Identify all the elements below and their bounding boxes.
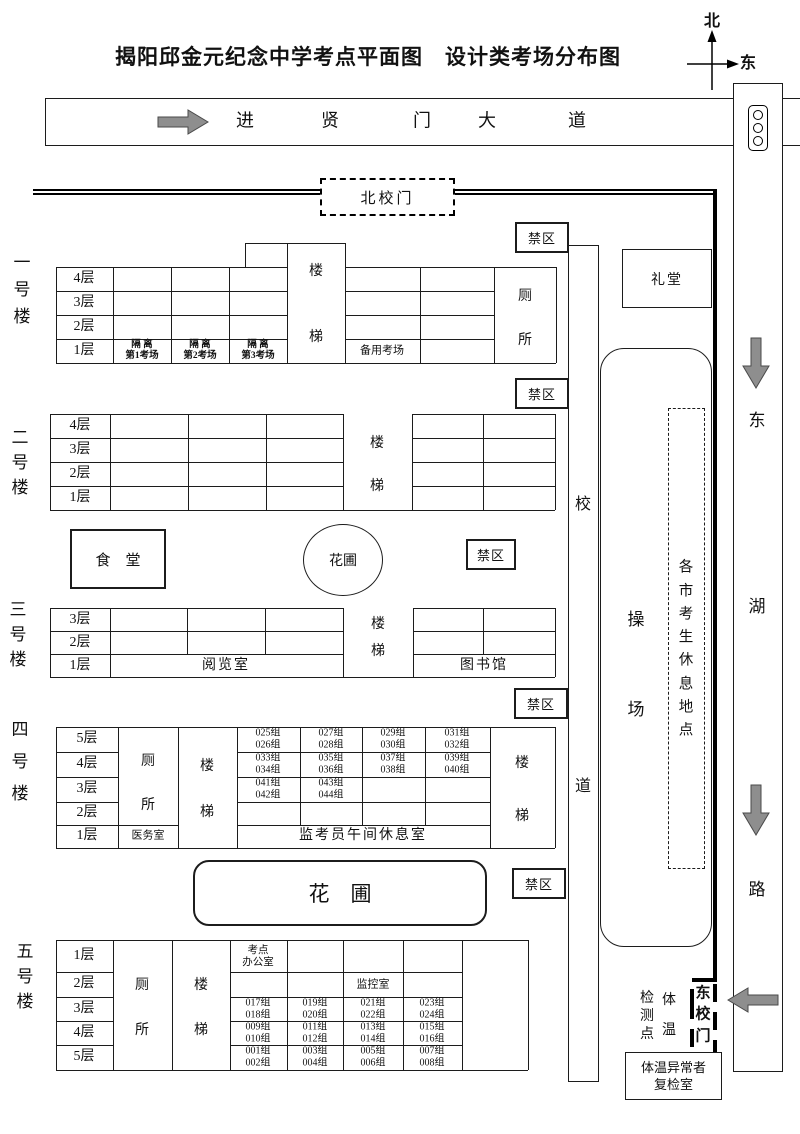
floor-label: 1层 <box>74 948 95 964</box>
forbidden-zone-label: 禁区 <box>525 874 553 893</box>
floor-label: 1层 <box>70 490 91 506</box>
floor-label: 2层 <box>74 319 95 335</box>
floor-label: 3层 <box>74 1001 95 1017</box>
grid-line <box>413 654 555 655</box>
north-gate: 北校门 <box>320 178 455 216</box>
garden-rect: 花 圃 <box>193 860 487 926</box>
grid-line <box>425 727 426 825</box>
east-wall <box>713 189 717 980</box>
top-road-char: 贤 <box>321 111 339 132</box>
grid-line <box>266 414 267 510</box>
traffic-light-dot <box>753 123 763 133</box>
auditorium: 礼堂 <box>622 249 712 308</box>
toilet-char: 所 <box>518 333 532 349</box>
east-gate-char: 门 <box>695 1028 710 1045</box>
grid-line <box>50 608 51 677</box>
grid-line <box>56 752 118 753</box>
building5-label-char: 号 <box>17 967 34 987</box>
floor-label: 5层 <box>74 1049 95 1065</box>
grid-line <box>50 486 343 487</box>
rest-area-char: 考 <box>679 607 694 624</box>
monitor-room-label: 监控室 <box>357 979 390 992</box>
building4-label-char: 四 <box>12 720 29 740</box>
rest-area-char: 休 <box>679 653 694 670</box>
east-gate-char: 东 <box>695 985 710 1002</box>
garden-circle-label: 花圃 <box>329 550 357 570</box>
isolation-room-1: 隔 离 第1考场 <box>125 340 158 362</box>
top-road-upper-line <box>45 98 800 99</box>
building2-label-char: 号 <box>12 453 29 473</box>
grid-line <box>56 1021 113 1022</box>
exam-group-cell: 011组 012组 <box>303 1022 328 1045</box>
garden-circle: 花圃 <box>303 524 383 596</box>
grid-line <box>343 940 344 1070</box>
building2-label-char: 二 <box>12 428 29 448</box>
campus-road-char: 校 <box>575 496 591 514</box>
exam-group-cell: 001组 002组 <box>246 1046 271 1069</box>
east-road-char: 东 <box>749 411 766 431</box>
isolation-room-2: 隔 离 第2考场 <box>183 340 216 362</box>
grid-line <box>56 1070 528 1071</box>
exam-group-cell: 029组 030组 <box>381 728 406 751</box>
north-gate-label: 北校门 <box>360 187 414 208</box>
grid-line <box>413 608 555 609</box>
auditorium-label: 礼堂 <box>651 269 683 289</box>
building5-label-char: 楼 <box>17 992 34 1012</box>
grid-line <box>237 825 490 826</box>
grid-line <box>555 608 556 677</box>
traffic-light-icon <box>748 105 768 151</box>
building1-label-char: 号 <box>14 280 31 300</box>
building1-label-char: 楼 <box>14 307 31 327</box>
north-wall <box>455 189 716 195</box>
grid-line <box>494 267 495 363</box>
grid-line <box>110 608 111 677</box>
east-gate-post <box>690 989 694 1019</box>
canteen-label: 食 堂 <box>95 549 140 570</box>
building1-label-char: 一 <box>14 253 31 273</box>
top-road-char: 门 <box>413 111 431 132</box>
top-road-char: 进 <box>236 111 254 132</box>
forbidden-zone-label: 禁区 <box>528 384 556 403</box>
grid-line <box>287 243 288 363</box>
floor-label: 2层 <box>70 635 91 651</box>
exam-group-cell: 033组 034组 <box>256 753 281 776</box>
rest-area-char: 地 <box>679 700 694 717</box>
grid-line <box>413 631 555 632</box>
rest-area-char: 生 <box>679 630 694 647</box>
grid-line <box>56 267 57 363</box>
temp-check-char: 点 <box>640 1027 654 1043</box>
grid-line <box>343 414 344 510</box>
grid-line <box>412 414 413 510</box>
building2-label-char: 楼 <box>12 478 29 498</box>
playground-char: 操 <box>628 610 645 630</box>
floor-label: 4层 <box>77 756 98 772</box>
stairs-char: 梯 <box>194 1023 208 1039</box>
grid-line <box>113 267 114 363</box>
grid-line <box>230 940 231 1070</box>
grid-line <box>483 608 484 654</box>
exam-group-cell: 003组 004组 <box>303 1046 328 1069</box>
grid-line <box>229 267 230 363</box>
stairs-char: 梯 <box>515 809 529 825</box>
grid-line <box>50 677 555 678</box>
grid-line <box>245 243 246 267</box>
grid-line <box>50 414 343 415</box>
rest-area-char: 各 <box>679 560 694 577</box>
east-road <box>733 83 783 1072</box>
grid-line <box>56 997 113 998</box>
top-road-lower-line <box>45 145 800 146</box>
grid-line <box>118 727 119 848</box>
reading-room-label: 阅览室 <box>202 658 250 674</box>
forbidden-zone-badge: 禁区 <box>512 868 566 899</box>
grid-line <box>50 438 343 439</box>
forbidden-zone-label: 禁区 <box>528 228 556 247</box>
traffic-light-dot <box>753 136 763 146</box>
building5-label-char: 五 <box>17 942 34 962</box>
grid-line <box>188 414 189 510</box>
arrow-down-icon <box>743 338 769 390</box>
floor-label: 1层 <box>74 343 95 359</box>
exam-group-cell: 019组 020组 <box>303 998 328 1021</box>
grid-line <box>403 940 404 1070</box>
compass-north-label: 北 <box>704 13 720 31</box>
east-gate-notch <box>712 1002 719 1012</box>
exam-group-cell: 025组 026组 <box>256 728 281 751</box>
grid-line <box>56 363 556 364</box>
campus-road-char: 道 <box>575 778 591 796</box>
grid-line <box>265 608 266 654</box>
toilet-char: 厕 <box>135 978 149 994</box>
stairs-char: 梯 <box>200 805 214 821</box>
grid-line <box>462 940 463 1070</box>
garden-rect-label: 花 圃 <box>309 878 372 908</box>
arrow-right-icon <box>158 109 210 135</box>
building3-label-char: 号 <box>10 625 27 645</box>
temp-check-char: 体 <box>662 993 676 1009</box>
library-label: 图书馆 <box>460 658 508 674</box>
grid-line <box>287 940 288 1070</box>
stairs-char: 楼 <box>309 264 323 280</box>
grid-line <box>230 972 462 973</box>
temp-check-char: 检 <box>640 991 654 1007</box>
grid-line <box>171 267 172 363</box>
exam-group-cell: 007组 008组 <box>420 1046 445 1069</box>
grid-line <box>56 802 118 803</box>
grid-line <box>50 654 343 655</box>
floor-label: 3层 <box>74 295 95 311</box>
exam-group-cell: 027组 028组 <box>319 728 344 751</box>
grid-line <box>483 414 484 510</box>
floor-label: 2层 <box>74 976 95 992</box>
stairs-char: 楼 <box>371 617 385 633</box>
east-gate-notch <box>712 1030 719 1040</box>
east-gate-top-bar <box>692 978 717 982</box>
invigilator-rest-label: 监考员午间休息室 <box>299 828 427 844</box>
grid-line <box>555 414 556 510</box>
exam-group-cell: 031组 032组 <box>445 728 470 751</box>
site-office-label: 考点 办公室 <box>242 945 274 969</box>
grid-line <box>490 727 491 848</box>
grid-line <box>110 414 111 510</box>
exam-group-cell: 041组 042组 <box>256 778 281 801</box>
grid-line <box>300 727 301 825</box>
arrow-down-icon <box>743 785 769 837</box>
top-road-left-line <box>45 98 46 145</box>
exam-group-cell: 009组 010组 <box>246 1022 271 1045</box>
exam-group-cell: 021组 022组 <box>361 998 386 1021</box>
north-wall <box>33 189 320 195</box>
exam-site-floor-plan: 揭阳邱金元纪念中学考点平面图 设计类考场分布图 北 东 进 贤 门 大 道 北校… <box>0 0 800 1134</box>
floor-label: 2层 <box>70 466 91 482</box>
east-road-char: 路 <box>749 880 766 900</box>
isolation-room-3: 隔 离 第3考场 <box>241 340 274 362</box>
grid-line <box>56 727 555 728</box>
top-road-char: 道 <box>568 111 586 132</box>
floor-label: 2层 <box>77 805 98 821</box>
grid-line <box>56 825 178 826</box>
grid-line <box>50 510 555 511</box>
exam-group-cell: 023组 024组 <box>420 998 445 1021</box>
traffic-light-dot <box>753 110 763 120</box>
grid-line <box>50 462 343 463</box>
floor-label: 3层 <box>70 612 91 628</box>
exam-group-cell: 017组 018组 <box>246 998 271 1021</box>
grid-line <box>113 940 114 1070</box>
exam-group-cell: 039组 040组 <box>445 753 470 776</box>
rest-area-char: 点 <box>679 723 694 740</box>
grid-line <box>56 972 113 973</box>
grid-line <box>362 727 363 825</box>
forbidden-zone-label: 禁区 <box>477 545 505 564</box>
stairs-char: 楼 <box>370 436 384 452</box>
building3-label-char: 三 <box>10 600 27 620</box>
exam-group-cell: 015组 016组 <box>420 1022 445 1045</box>
grid-line <box>237 727 238 848</box>
grid-line <box>187 608 188 654</box>
forbidden-zone-badge: 禁区 <box>466 539 516 570</box>
building4-label-char: 号 <box>12 752 29 772</box>
compass-east-label: 东 <box>740 55 756 73</box>
toilet-char: 厕 <box>518 289 532 305</box>
temp-check-char: 温 <box>662 1023 676 1039</box>
rest-area-char: 息 <box>679 677 694 694</box>
stairs-char: 梯 <box>309 330 323 346</box>
recheck-room: 体温异常者 复检室 <box>625 1052 722 1100</box>
east-gate-char: 校 <box>695 1006 710 1023</box>
floor-label: 1层 <box>70 658 91 674</box>
medical-room-label: 医务室 <box>132 830 165 843</box>
building4-label-char: 楼 <box>12 784 29 804</box>
floor-label: 4层 <box>74 1025 95 1041</box>
temp-check-char: 测 <box>640 1009 654 1025</box>
campus-road <box>568 245 599 1082</box>
floor-label: 4层 <box>70 418 91 434</box>
grid-line <box>56 1045 113 1046</box>
grid-line <box>50 631 343 632</box>
toilet-char: 厕 <box>141 754 155 770</box>
grid-line <box>555 727 556 848</box>
exam-group-cell: 035组 036组 <box>319 753 344 776</box>
canteen: 食 堂 <box>70 529 166 589</box>
grid-line <box>56 777 118 778</box>
forbidden-zone-label: 禁区 <box>527 694 555 713</box>
grid-line <box>56 940 528 941</box>
exam-group-cell: 005组 006组 <box>361 1046 386 1069</box>
grid-line <box>245 243 345 244</box>
grid-line <box>172 940 173 1070</box>
grid-line <box>413 608 414 677</box>
floor-label: 3层 <box>70 442 91 458</box>
grid-line <box>420 267 421 363</box>
exam-group-cell: 037组 038组 <box>381 753 406 776</box>
grid-line <box>56 940 57 1070</box>
grid-line <box>556 267 557 363</box>
grid-line <box>345 243 346 363</box>
stairs-char: 楼 <box>515 756 529 772</box>
stairs-char: 梯 <box>370 479 384 495</box>
east-gate-post <box>690 1029 694 1047</box>
building3-label-char: 楼 <box>10 650 27 670</box>
grid-line <box>237 802 490 803</box>
east-road-char: 湖 <box>749 597 766 617</box>
grid-line <box>50 414 51 510</box>
page-title: 揭阳邱金元纪念中学考点平面图 设计类考场分布图 <box>115 45 621 69</box>
grid-line <box>56 848 555 849</box>
grid-line <box>56 727 57 848</box>
toilet-char: 所 <box>141 798 155 814</box>
grid-line <box>50 608 343 609</box>
toilet-char: 所 <box>135 1023 149 1039</box>
floor-label: 3层 <box>77 781 98 797</box>
playground-char: 场 <box>628 700 645 720</box>
exam-group-cell: 013组 014组 <box>361 1022 386 1045</box>
stairs-char: 梯 <box>371 644 385 660</box>
top-road-char: 大 <box>478 111 496 132</box>
floor-label: 1层 <box>77 828 98 844</box>
backup-room-label: 备用考场 <box>360 345 404 358</box>
arrow-left-icon <box>728 987 780 1013</box>
floor-label: 4层 <box>74 271 95 287</box>
forbidden-zone-badge: 禁区 <box>515 378 569 409</box>
recheck-room-label: 体温异常者 复检室 <box>641 1059 706 1093</box>
grid-line <box>178 727 179 848</box>
stairs-char: 楼 <box>200 759 214 775</box>
grid-line <box>345 267 556 268</box>
floor-label: 5层 <box>77 731 98 747</box>
rest-area-char: 市 <box>679 584 694 601</box>
stairs-char: 楼 <box>194 978 208 994</box>
forbidden-zone-badge: 禁区 <box>514 688 568 719</box>
exam-group-cell: 043组 044组 <box>319 778 344 801</box>
grid-line <box>528 940 529 1070</box>
grid-line <box>343 608 344 677</box>
forbidden-zone-badge: 禁区 <box>515 222 569 253</box>
